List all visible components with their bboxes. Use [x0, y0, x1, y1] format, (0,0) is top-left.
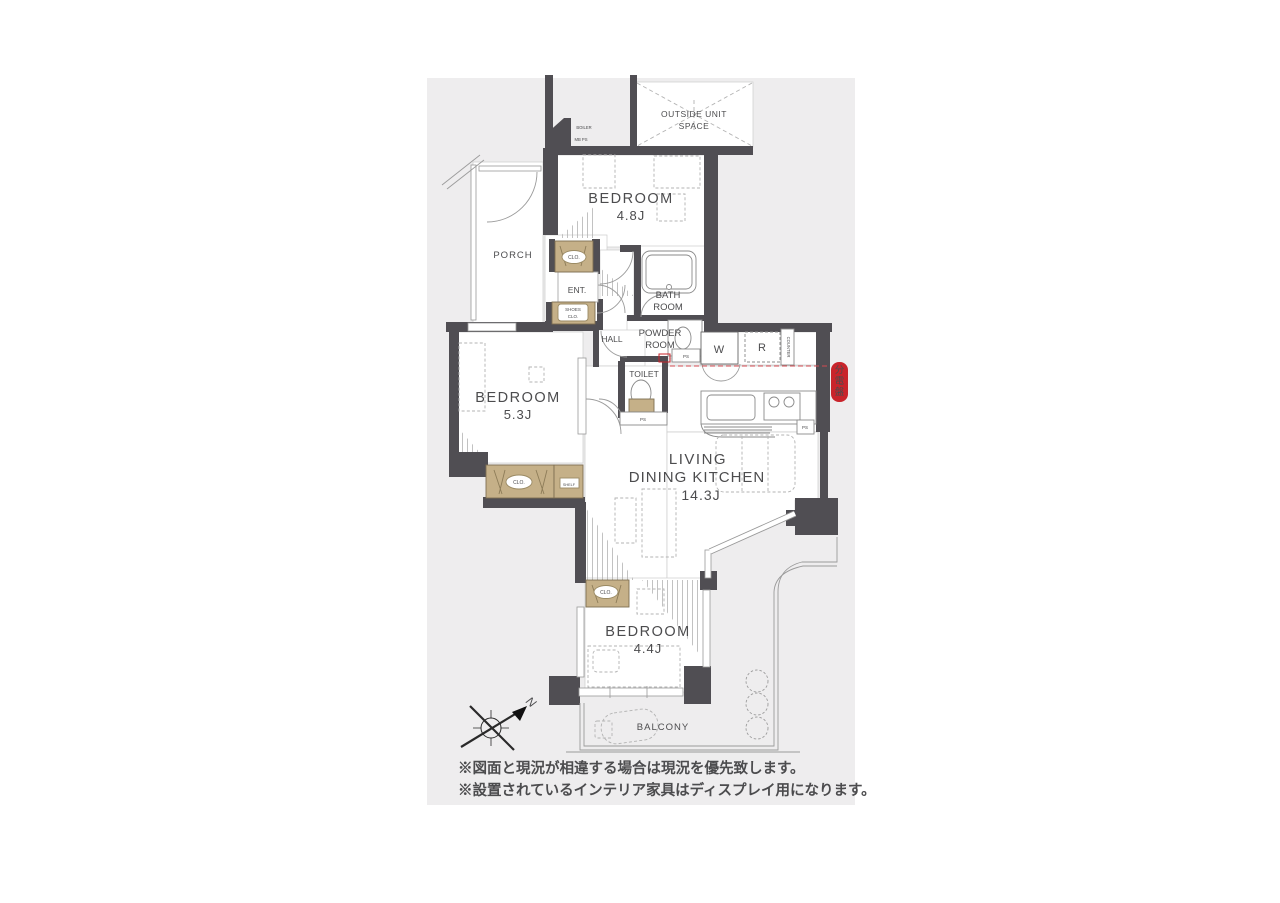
- counter-label: COUNTER: [786, 337, 791, 358]
- toilet-cabinet: [629, 399, 654, 412]
- bedroom53-label: BEDROOM: [475, 390, 560, 406]
- bedroom44-label: BEDROOM: [605, 624, 690, 640]
- fridge-label: R: [758, 342, 766, 354]
- floorplan-page: 分電盤 N OUTSIDE UNIT SPACE BOILER MB PS BE…: [0, 0, 1280, 903]
- outside-unit-label-2: SPACE: [679, 121, 710, 131]
- toilet-label: TOILET: [629, 369, 659, 379]
- bath-label-2: ROOM: [653, 302, 683, 313]
- ldk-label-2: DINING KITCHEN: [629, 469, 766, 486]
- ps-label-1: PS: [683, 354, 689, 359]
- ps-label-3: PS: [802, 425, 808, 430]
- dist-board-label: 分電盤: [835, 365, 845, 398]
- shelf-label: SHELF: [563, 483, 576, 487]
- shoes-label-2: CLO.: [568, 314, 579, 319]
- ldk-label-1: LIVING: [669, 451, 727, 468]
- ent-label: ENT.: [568, 285, 586, 295]
- balcony-label: BALCONY: [637, 722, 689, 733]
- mb-ps-label: MB PS: [574, 137, 587, 142]
- ldk-area: 14.3J: [681, 487, 720, 503]
- ps-label-2: PS: [640, 417, 646, 422]
- bedroom48-label: BEDROOM: [588, 191, 673, 207]
- bedroom53-area: 5.3J: [504, 407, 533, 422]
- bath-label-1: BATH: [656, 290, 681, 301]
- clo-44-label: CLO.: [600, 590, 612, 596]
- porch-label: PORCH: [493, 250, 532, 261]
- kitchen-sink: [707, 395, 755, 420]
- bedroom48-area: 4.8J: [617, 208, 646, 223]
- stove: [764, 393, 800, 420]
- outside-unit-label-1: OUTSIDE UNIT: [661, 109, 727, 119]
- clo-53-label: CLO.: [513, 480, 525, 486]
- floorplan-drawing: 分電盤 N OUTSIDE UNIT SPACE BOILER MB PS BE…: [0, 0, 1280, 903]
- washer-label: W: [714, 344, 725, 356]
- note-line-2: ※設置されているインテリア家具はディスプレイ用になります。: [458, 781, 876, 799]
- boiler-label: BOILER: [576, 125, 591, 130]
- bedroom44-area: 4.4J: [634, 641, 663, 656]
- hall-label: HALL: [601, 334, 623, 344]
- clo-ent-label: CLO.: [568, 255, 580, 261]
- powder-label-1: POWDER: [639, 328, 682, 339]
- powder-label-2: ROOM: [645, 340, 675, 351]
- shoes-label-1: SHOES: [565, 307, 581, 312]
- note-line-1: ※図面と現況が相違する場合は現況を優先致します。: [458, 759, 805, 777]
